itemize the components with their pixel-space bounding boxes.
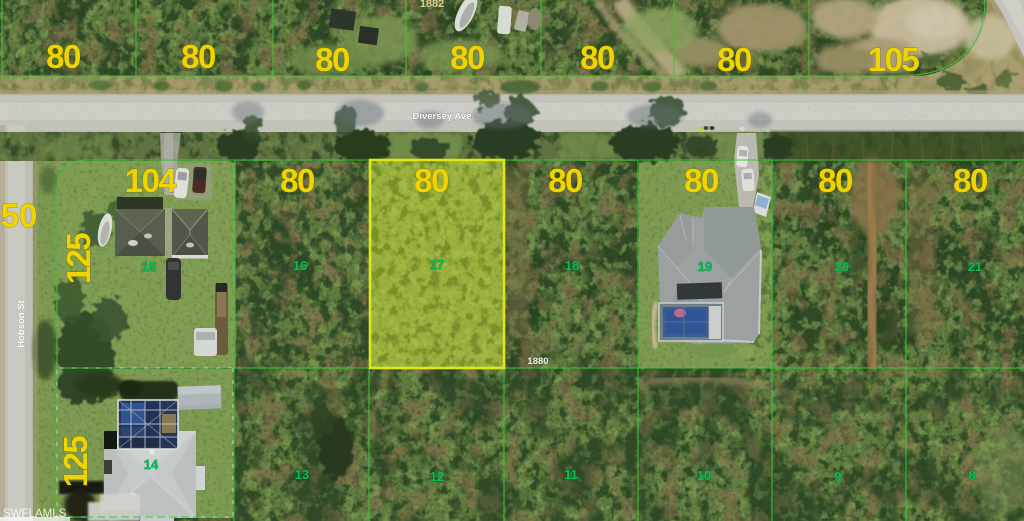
svg-text:105: 105: [868, 41, 920, 78]
svg-text:80: 80: [414, 162, 448, 199]
svg-text:13: 13: [295, 467, 309, 482]
svg-text:104: 104: [125, 162, 178, 199]
svg-text:11: 11: [564, 467, 578, 482]
svg-text:8: 8: [968, 468, 975, 483]
svg-text:15: 15: [142, 259, 156, 274]
svg-text:125: 125: [60, 233, 97, 285]
svg-text:125: 125: [57, 436, 94, 488]
svg-text:80: 80: [717, 41, 751, 78]
svg-text:20: 20: [835, 259, 849, 274]
svg-text:80: 80: [818, 162, 852, 199]
svg-text:16: 16: [293, 258, 307, 273]
svg-text:21: 21: [968, 259, 982, 274]
svg-text:50: 50: [1, 197, 38, 234]
svg-text:14: 14: [144, 457, 159, 472]
svg-text:80: 80: [181, 38, 215, 75]
svg-text:17: 17: [430, 257, 444, 272]
svg-text:80: 80: [684, 162, 718, 199]
svg-text:1880: 1880: [527, 356, 548, 367]
svg-text:80: 80: [953, 162, 987, 199]
svg-text:1882: 1882: [420, 0, 444, 10]
svg-text:12: 12: [430, 469, 444, 484]
svg-text:80: 80: [580, 39, 614, 76]
svg-text:Diversey Ave: Diversey Ave: [413, 111, 472, 122]
svg-text:9: 9: [834, 469, 841, 484]
svg-text:80: 80: [548, 162, 582, 199]
svg-text:18: 18: [565, 258, 579, 273]
svg-text:80: 80: [280, 162, 314, 199]
svg-text:SWFLAMLS: SWFLAMLS: [3, 508, 67, 520]
svg-text:10: 10: [697, 468, 711, 483]
svg-text:80: 80: [46, 38, 80, 75]
svg-text:Hobson St: Hobson St: [16, 299, 27, 347]
svg-text:80: 80: [450, 39, 484, 76]
svg-text:19: 19: [698, 259, 712, 274]
svg-text:80: 80: [315, 41, 349, 78]
